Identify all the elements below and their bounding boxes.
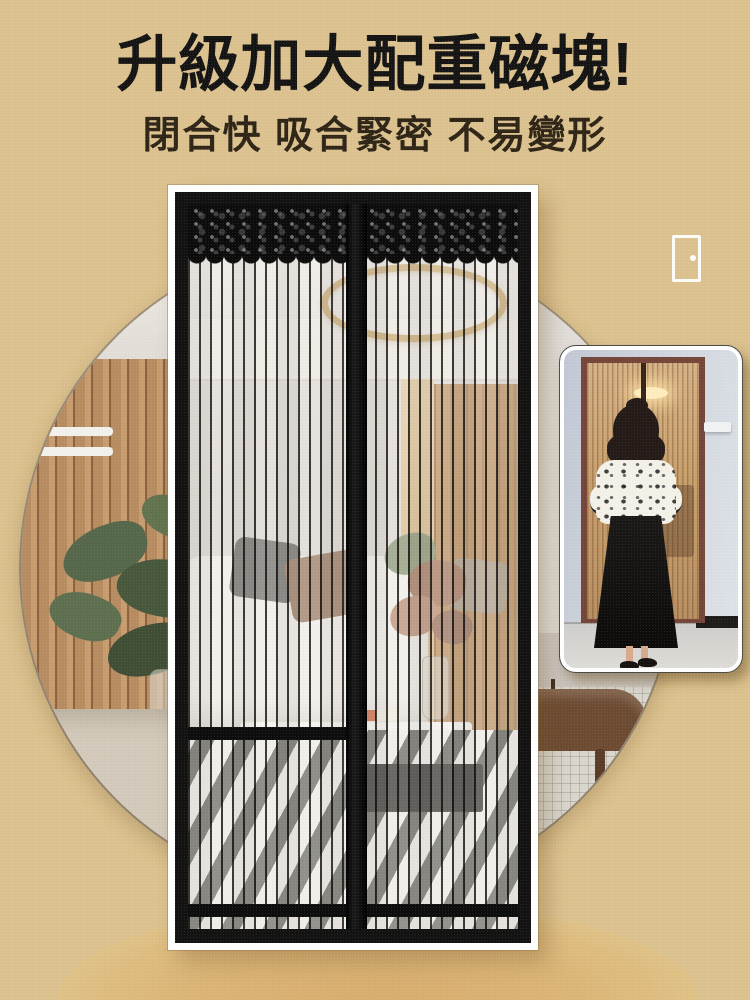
- magnetic-center-strip: [346, 204, 367, 929]
- inset-photo: [559, 345, 743, 673]
- dining-table-leg: [595, 749, 605, 805]
- door-knob-dot: [690, 255, 696, 261]
- door-outline-icon: [672, 235, 701, 282]
- dining-table: [519, 689, 647, 751]
- door-screen-area: [188, 204, 518, 929]
- inset-photo-scene: [564, 350, 738, 668]
- window-bar: [27, 427, 113, 436]
- page-title: 升級加大配重磁塊!: [0, 28, 750, 100]
- wall-unit: [704, 422, 731, 432]
- woman-figure: [586, 402, 686, 652]
- mesh-seam-left: [188, 727, 346, 740]
- door-black-frame: [175, 192, 531, 943]
- woman-floral-blouse: [596, 460, 676, 524]
- woman-sandal: [620, 661, 639, 668]
- woman-black-skirt: [594, 516, 678, 648]
- woman-sandal: [638, 658, 657, 667]
- page-background: 升級加大配重磁塊! 閉合快 吸合緊密 不易變形: [0, 0, 750, 1000]
- page-subtitle: 閉合快 吸合緊密 不易變形: [0, 112, 750, 160]
- window-bar: [27, 447, 113, 456]
- product-door-photo: [168, 185, 538, 950]
